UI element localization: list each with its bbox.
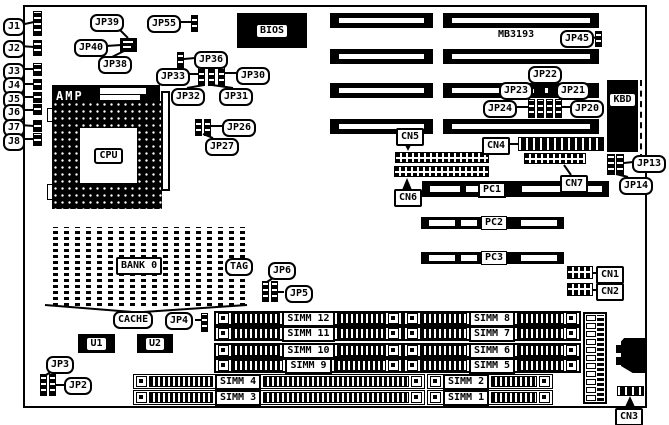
bios-chip: BIOS bbox=[237, 13, 307, 48]
label-jp45: JP45 bbox=[560, 30, 594, 48]
cn7-header bbox=[524, 153, 586, 164]
simm-slot-10: SIMM 10 bbox=[214, 343, 403, 358]
simm-slot-11: SIMM 11 bbox=[214, 326, 403, 341]
simm-slot-12: SIMM 12 bbox=[214, 311, 403, 326]
label-simm3: SIMM 3 bbox=[215, 390, 261, 406]
simm-pins bbox=[337, 313, 386, 324]
jp24-jp20-jumper-4 bbox=[555, 99, 562, 118]
cache-dip-column bbox=[97, 227, 113, 306]
label-jp22: JP22 bbox=[528, 66, 562, 84]
cache-dip-column bbox=[207, 227, 223, 306]
j1-connector bbox=[33, 11, 42, 36]
din-nub bbox=[616, 345, 622, 353]
simm-latch bbox=[566, 360, 577, 371]
kbd-connector: KBD bbox=[607, 80, 638, 152]
label-jp36: JP36 bbox=[194, 51, 228, 69]
cn6-header bbox=[394, 166, 489, 177]
label-simm4: SIMM 4 bbox=[215, 374, 261, 390]
simm-latch bbox=[388, 313, 399, 324]
jp13-jumper bbox=[607, 154, 615, 175]
label-jp4: JP4 bbox=[165, 312, 193, 330]
label-cache: CACHE bbox=[113, 311, 153, 329]
simm-slot-6: SIMM 6 bbox=[403, 343, 581, 358]
simm-slot-4: SIMM 4 bbox=[133, 374, 425, 389]
j5-connector bbox=[33, 92, 42, 103]
simm-pins bbox=[517, 328, 564, 339]
label-jp3: JP3 bbox=[46, 356, 74, 374]
label-cn1: CN1 bbox=[596, 266, 624, 284]
expansion-slot bbox=[330, 49, 433, 64]
simm-latch bbox=[430, 376, 441, 387]
j2-connector bbox=[33, 40, 42, 56]
simm-pins bbox=[231, 360, 283, 371]
amp-socket-bar: AMP bbox=[52, 85, 160, 103]
label-cn2: CN2 bbox=[596, 283, 624, 301]
label-cn3: CN3 bbox=[615, 408, 643, 425]
simm-latch bbox=[407, 313, 418, 324]
simm-pins bbox=[420, 313, 467, 324]
label-jp32: JP32 bbox=[171, 88, 205, 106]
jp26-jumper-a bbox=[195, 119, 202, 136]
label-amp: AMP bbox=[52, 89, 84, 103]
jp45-jumper bbox=[595, 31, 602, 47]
pc1-stripe bbox=[466, 186, 478, 192]
label-j1: J1 bbox=[3, 18, 25, 36]
label-jp13: JP13 bbox=[632, 155, 666, 173]
simm-latch bbox=[136, 392, 147, 403]
j3-connector bbox=[33, 63, 42, 76]
power-connector bbox=[583, 312, 607, 404]
simm-latch bbox=[566, 313, 577, 324]
jp33-jumper bbox=[198, 67, 205, 86]
simm-latch bbox=[136, 376, 147, 387]
j6-connector bbox=[33, 104, 42, 115]
label-cn4: CN4 bbox=[482, 137, 510, 155]
pc3-stripe bbox=[521, 255, 557, 261]
label-pc1: PC1 bbox=[478, 182, 506, 198]
cn4-connector bbox=[518, 137, 604, 151]
simm-pins bbox=[420, 328, 467, 339]
simm-latch bbox=[539, 376, 550, 387]
jp55-jumper bbox=[191, 15, 198, 32]
label-bios: BIOS bbox=[256, 24, 288, 38]
u1-chip: U1 bbox=[78, 334, 115, 353]
simm-pins bbox=[231, 313, 280, 324]
simm-slot-5: SIMM 5 bbox=[403, 358, 581, 373]
motherboard-diagram: J1 J2 J3 J4 J5 J6 J7 J8 JP39 JP40 JP38 J… bbox=[0, 0, 669, 425]
expansion-slot bbox=[443, 119, 599, 134]
expansion-slot bbox=[443, 13, 599, 28]
simm-latch bbox=[388, 360, 399, 371]
kbd-dashed-edge bbox=[640, 80, 642, 160]
simm-slot-2: SIMM 2 bbox=[427, 374, 553, 389]
simm-slot-7: SIMM 7 bbox=[403, 326, 581, 341]
label-j8: J8 bbox=[3, 133, 25, 151]
label-u1: U1 bbox=[86, 337, 106, 351]
j8-connector bbox=[33, 133, 42, 146]
label-jp21: JP21 bbox=[556, 82, 590, 100]
socket-bar-stripe bbox=[100, 88, 146, 94]
jp24-jp20-jumper-3 bbox=[546, 99, 553, 118]
label-jp33: JP33 bbox=[156, 68, 190, 86]
jp36-jumper bbox=[177, 52, 184, 68]
label-jp23: JP23 bbox=[499, 82, 533, 100]
label-simm11: SIMM 11 bbox=[282, 326, 334, 342]
label-jp27: JP27 bbox=[205, 138, 239, 156]
label-simm5: SIMM 5 bbox=[469, 358, 515, 374]
cpu-socket-center: CPU bbox=[80, 128, 137, 183]
simm-pins bbox=[231, 345, 280, 356]
simm-pins bbox=[149, 376, 213, 387]
jp39-jp40-jp38-jumper-block bbox=[120, 38, 137, 52]
label-jp2: JP2 bbox=[64, 377, 92, 395]
expansion-slot bbox=[443, 49, 599, 64]
simm-pins bbox=[517, 345, 564, 356]
label-simm7: SIMM 7 bbox=[469, 326, 515, 342]
label-jp39: JP39 bbox=[90, 14, 124, 32]
socket-bar-stripe bbox=[100, 95, 140, 100]
label-cn7: CN7 bbox=[560, 175, 588, 193]
socket-tab-bottom bbox=[47, 184, 53, 200]
simm-latch bbox=[388, 328, 399, 339]
din-nub bbox=[616, 357, 622, 365]
label-cn5: CN5 bbox=[396, 128, 424, 146]
expansion-slot bbox=[330, 13, 433, 28]
pc2-stripe bbox=[429, 220, 455, 226]
simm-latch bbox=[218, 345, 229, 356]
simm-pins bbox=[337, 328, 386, 339]
cn3-connector bbox=[617, 386, 644, 396]
simm-latch bbox=[411, 376, 422, 387]
jp6-jumper bbox=[262, 281, 269, 302]
j4-connector bbox=[33, 79, 42, 90]
power-pins-left bbox=[586, 315, 596, 401]
label-simm8: SIMM 8 bbox=[469, 311, 515, 327]
pc3-stripe bbox=[429, 255, 455, 261]
label-kbd: KBD bbox=[609, 93, 635, 107]
cache-dip-column bbox=[75, 227, 91, 306]
label-jp30: JP30 bbox=[236, 67, 270, 85]
label-jp5: JP5 bbox=[285, 285, 313, 303]
simm-pins bbox=[231, 328, 280, 339]
simm-pins bbox=[263, 392, 409, 403]
jp3-jumper bbox=[40, 374, 47, 396]
cache-dip-column bbox=[53, 227, 69, 306]
simm-slot-8: SIMM 8 bbox=[403, 311, 581, 326]
label-bank0: BANK 0 bbox=[116, 257, 162, 275]
simm-slot-1: SIMM 1 bbox=[427, 390, 553, 405]
label-simm12: SIMM 12 bbox=[282, 311, 334, 327]
u2-chip: U2 bbox=[137, 334, 173, 353]
cache-dip-column bbox=[185, 227, 201, 306]
simm-pins bbox=[491, 392, 537, 403]
jp31-jumper bbox=[218, 67, 225, 86]
label-simm2: SIMM 2 bbox=[443, 374, 489, 390]
simm-latch bbox=[407, 345, 418, 356]
simm-pins bbox=[491, 376, 537, 387]
keyboard-din-connector bbox=[621, 338, 647, 373]
jp2-jumper bbox=[49, 374, 56, 396]
simm-latch bbox=[539, 392, 550, 403]
simm-latch bbox=[566, 328, 577, 339]
simm-latch bbox=[218, 328, 229, 339]
label-jp24: JP24 bbox=[483, 100, 517, 118]
label-jp31: JP31 bbox=[219, 88, 253, 106]
label-jp20: JP20 bbox=[570, 100, 604, 118]
label-jp26: JP26 bbox=[222, 119, 256, 137]
simm-slot-3: SIMM 3 bbox=[133, 390, 425, 405]
jp24-jp20-jumper-2 bbox=[537, 99, 544, 118]
cache-dip-column bbox=[163, 227, 179, 306]
simm-slot-9: SIMM 9 bbox=[214, 358, 403, 373]
pc1-stripe bbox=[430, 186, 460, 192]
label-cn6: CN6 bbox=[394, 189, 422, 207]
simm-latch bbox=[566, 345, 577, 356]
simm-pins bbox=[149, 392, 213, 403]
pc2-stripe bbox=[521, 220, 557, 226]
pc2-connector: PC2 bbox=[421, 217, 564, 229]
cn5-header bbox=[395, 152, 489, 163]
label-pc3: PC3 bbox=[481, 251, 507, 265]
jp32-jumper bbox=[208, 67, 215, 86]
label-tag: TAG bbox=[225, 258, 253, 276]
jp26-jumper-b bbox=[204, 119, 211, 136]
label-simm1: SIMM 1 bbox=[443, 390, 489, 406]
simm-pins bbox=[517, 313, 564, 324]
label-cpu: CPU bbox=[94, 148, 122, 164]
label-jp6: JP6 bbox=[268, 262, 296, 280]
cn1-connector bbox=[567, 266, 593, 279]
label-simm9: SIMM 9 bbox=[285, 358, 331, 374]
simm-latch bbox=[411, 392, 422, 403]
simm-latch bbox=[407, 328, 418, 339]
label-pc2: PC2 bbox=[481, 216, 507, 230]
pc3-stripe bbox=[461, 255, 477, 261]
simm-latch bbox=[218, 313, 229, 324]
jp24-jp20-jumper-1 bbox=[528, 99, 535, 118]
label-jp38: JP38 bbox=[98, 56, 132, 74]
pc3-connector: PC3 bbox=[421, 252, 564, 264]
socket-tab-top bbox=[47, 108, 53, 122]
label-jp55: JP55 bbox=[147, 15, 181, 33]
label-jp14: JP14 bbox=[619, 177, 653, 195]
label-j2: J2 bbox=[3, 40, 25, 58]
simm-latch bbox=[388, 345, 399, 356]
pc2-stripe bbox=[461, 220, 477, 226]
zif-lever bbox=[161, 91, 170, 191]
simm-pins bbox=[420, 345, 467, 356]
board-model-text: MB3193 bbox=[498, 30, 534, 40]
j7-connector bbox=[33, 120, 42, 132]
simm-latch bbox=[407, 360, 418, 371]
simm-latch bbox=[218, 360, 229, 371]
jp5-jumper bbox=[271, 281, 278, 302]
label-jp40: JP40 bbox=[74, 39, 108, 57]
simm-pins bbox=[420, 360, 467, 371]
simm-pins bbox=[334, 360, 386, 371]
cn2-connector bbox=[567, 283, 593, 296]
simm-pins bbox=[337, 345, 386, 356]
power-pins-right bbox=[597, 315, 604, 401]
jp14-jumper bbox=[616, 154, 624, 175]
jp4-jumper bbox=[201, 313, 208, 332]
simm-latch bbox=[430, 392, 441, 403]
label-simm6: SIMM 6 bbox=[469, 343, 515, 359]
expansion-slot bbox=[330, 83, 433, 98]
label-u2: U2 bbox=[145, 337, 165, 351]
simm-pins bbox=[263, 376, 409, 387]
label-simm10: SIMM 10 bbox=[282, 343, 334, 359]
simm-pins bbox=[517, 360, 564, 371]
